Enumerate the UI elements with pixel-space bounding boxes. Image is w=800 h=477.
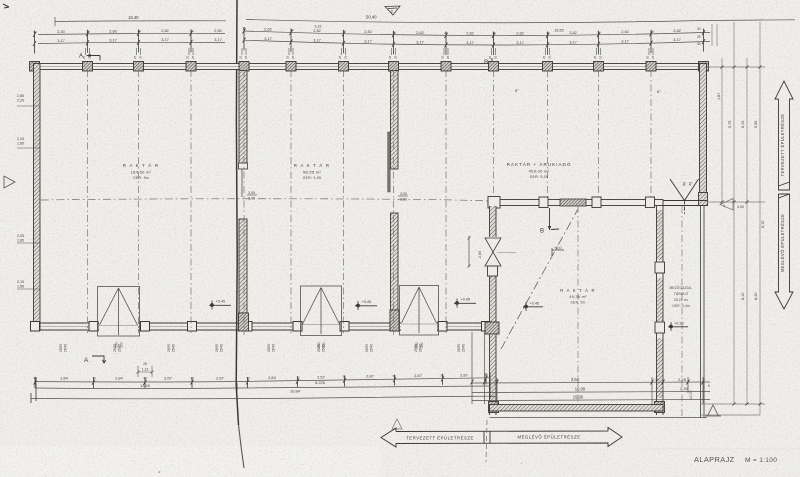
svg-text:30: 30 [492, 31, 496, 35]
svg-text:5,96: 5,96 [754, 121, 758, 128]
svg-text:6°: 6° [515, 88, 519, 93]
svg-text:2,30: 2,30 [57, 29, 65, 34]
svg-text:2,15: 2,15 [17, 280, 24, 284]
svg-text:30: 30 [246, 376, 250, 380]
svg-text:25: 25 [244, 55, 248, 59]
svg-text:3,17: 3,17 [466, 40, 474, 45]
svg-text:1,85: 1,85 [17, 239, 24, 243]
svg-text:TERVEZETT ÉPÜLETRÉSZE: TERVEZETT ÉPÜLETRÉSZE [780, 114, 785, 177]
svg-text:3,17: 3,17 [621, 39, 629, 44]
svg-text:25/55: 25/55 [317, 344, 321, 352]
svg-text:25: 25 [394, 55, 398, 59]
svg-text:2,82: 2,82 [673, 28, 681, 33]
svg-text:+0,45: +0,45 [362, 300, 372, 304]
svg-text:1,84: 1,84 [60, 376, 69, 381]
svg-text:2,84: 2,84 [268, 375, 277, 380]
svg-text:18,40: 18,40 [128, 15, 139, 20]
svg-text:3,22: 3,22 [314, 25, 321, 29]
svg-text:25: 25 [542, 55, 546, 59]
svg-text:+0,10: +0,10 [674, 322, 684, 326]
svg-text:25: 25 [133, 55, 137, 59]
svg-text:50,40: 50,40 [366, 15, 377, 20]
svg-text:98,55 m²: 98,55 m² [303, 170, 322, 175]
svg-text:25: 25 [291, 55, 295, 59]
svg-text:3,17: 3,17 [313, 37, 321, 42]
svg-text:30: 30 [242, 27, 246, 31]
svg-text:30: 30 [296, 375, 300, 379]
svg-text:30: 30 [597, 30, 601, 34]
svg-text:25/40: 25/40 [64, 344, 68, 352]
svg-text:25/40: 25/40 [462, 344, 466, 352]
svg-text:30: 30 [190, 29, 194, 33]
svg-text:25/40: 25/40 [322, 344, 326, 352]
svg-text:30: 30 [92, 376, 96, 380]
svg-text:25: 25 [651, 55, 655, 59]
svg-text:49,35 m²: 49,35 m² [569, 295, 587, 299]
svg-text:459,00 m²: 459,00 m² [529, 169, 550, 174]
svg-text:2,62: 2,62 [264, 27, 272, 32]
svg-text:25: 25 [286, 55, 290, 59]
svg-text:2,80: 2,80 [109, 28, 117, 33]
svg-text:3,00: 3,00 [400, 192, 407, 196]
svg-text:25: 25 [697, 35, 701, 39]
svg-text:2,82: 2,82 [516, 30, 524, 35]
svg-text:30: 30 [392, 374, 396, 378]
svg-text:30: 30 [655, 378, 659, 382]
svg-text:25/40: 25/40 [172, 344, 176, 352]
svg-text:5,225: 5,225 [315, 380, 326, 385]
svg-text:+0,0: +0,0 [554, 246, 562, 250]
svg-text:16,00: 16,00 [575, 387, 586, 392]
svg-text:2,87: 2,87 [366, 374, 375, 379]
svg-text:GER: 3,4m: GER: 3,4m [672, 304, 690, 308]
svg-text:3,17: 3,17 [161, 37, 169, 42]
svg-text:2,82: 2,82 [313, 28, 321, 33]
svg-text:25: 25 [344, 55, 348, 59]
svg-text:2,57: 2,57 [317, 374, 326, 379]
svg-text:M = 1:100: M = 1:100 [745, 457, 777, 464]
svg-text:2,25: 2,25 [17, 99, 24, 103]
svg-text:30: 30 [440, 373, 444, 377]
svg-text:2,85: 2,85 [17, 94, 24, 98]
svg-text:1,85: 1,85 [17, 142, 24, 146]
svg-text:R A K T Á R: R A K T Á R [560, 288, 595, 293]
svg-text:MEGLÉVŐ ÉPÜLETRÉSZE: MEGLÉVŐ ÉPÜLETRÉSZE [518, 435, 581, 440]
svg-text:25/55: 25/55 [167, 344, 171, 352]
svg-text:3,17: 3,17 [416, 39, 424, 44]
svg-text:30: 30 [650, 29, 654, 33]
svg-text:25: 25 [143, 362, 147, 366]
svg-text:10,84: 10,84 [290, 389, 301, 394]
svg-text:RAKTÁR + ÁRUKIADÓ: RAKTÁR + ÁRUKIADÓ [507, 161, 572, 167]
svg-text:25/40: 25/40 [272, 344, 276, 352]
svg-text:25: 25 [191, 55, 195, 59]
svg-text:2,57: 2,57 [164, 376, 173, 381]
svg-text:MEGLÉVŐ ÉPÜLETRÉSZE: MEGLÉVŐ ÉPÜLETRÉSZE [780, 214, 785, 273]
svg-text:90: 90 [682, 182, 687, 187]
svg-text:25: 25 [388, 55, 392, 59]
svg-text:6,10: 6,10 [761, 221, 765, 228]
svg-text:2,82: 2,82 [161, 28, 169, 33]
svg-text:25: 25 [593, 55, 597, 59]
svg-text:3,17: 3,17 [57, 38, 65, 43]
svg-text:25: 25 [599, 55, 603, 59]
svg-text:8,10: 8,10 [741, 293, 745, 300]
svg-text:5: 5 [708, 384, 710, 388]
svg-text:3,17: 3,17 [673, 37, 681, 42]
svg-text:3,17: 3,17 [214, 37, 222, 42]
svg-text:GER: 5,05: GER: 5,05 [303, 176, 322, 180]
svg-text:2,30: 2,30 [680, 386, 689, 391]
svg-text:GER: 5m: GER: 5m [133, 176, 149, 180]
svg-text:R A K T Á R: R A K T Á R [294, 163, 330, 168]
svg-text:45: 45 [688, 182, 693, 187]
svg-text:2,87: 2,87 [460, 372, 469, 377]
svg-text:1,13: 1,13 [142, 368, 149, 372]
svg-text:⁴: ⁴ [158, 470, 160, 476]
svg-text:30: 30 [697, 27, 701, 31]
svg-text:3,17: 3,17 [569, 39, 577, 44]
svg-text:+0,45: +0,45 [461, 298, 471, 302]
svg-text:2,62: 2,62 [416, 30, 424, 35]
svg-text:25/40: 25/40 [419, 344, 423, 352]
svg-text:30: 30 [392, 30, 396, 34]
svg-text:1,85: 1,85 [17, 285, 24, 289]
svg-text:25,22 m²: 25,22 m² [674, 298, 688, 302]
svg-text:2,15: 2,15 [17, 137, 24, 141]
svg-text:3,17: 3,17 [516, 40, 524, 45]
svg-text:30: 30 [697, 42, 701, 46]
svg-text:2,60: 2,60 [478, 251, 482, 258]
svg-text:30: 30 [342, 375, 346, 379]
svg-text:ALAPRAJZ: ALAPRAJZ [694, 455, 735, 464]
svg-text:25/40: 25/40 [370, 344, 374, 352]
svg-text:GER: 5,05: GER: 5,05 [530, 175, 549, 179]
svg-text:6°: 6° [657, 89, 661, 94]
svg-text:30: 30 [33, 376, 37, 380]
svg-text:2,57: 2,57 [216, 376, 225, 381]
svg-text:25: 25 [441, 55, 445, 59]
svg-text:3,00: 3,00 [737, 205, 744, 209]
svg-text:30: 30 [190, 376, 194, 380]
svg-text:A: A [79, 54, 83, 60]
svg-text:25: 25 [646, 55, 650, 59]
svg-text:3,17: 3,17 [264, 36, 272, 41]
svg-text:5,75: 5,75 [728, 121, 732, 128]
svg-text:TÁROLÓ: TÁROLÓ [674, 291, 689, 296]
svg-text:25/55: 25/55 [113, 344, 117, 352]
svg-text:2,82: 2,82 [466, 30, 474, 35]
svg-text:25/55: 25/55 [59, 344, 63, 352]
svg-text:25: 25 [338, 55, 342, 59]
svg-text:30: 30 [290, 28, 294, 32]
svg-text:15,00: 15,00 [573, 395, 584, 400]
svg-text:25: 25 [239, 55, 243, 59]
svg-text:184,50 m²: 184,50 m² [131, 170, 152, 175]
svg-text:30: 30 [137, 29, 141, 33]
svg-text:2,05: 2,05 [17, 234, 24, 238]
svg-text:25/40: 25/40 [118, 344, 122, 352]
svg-text:GER: 5m: GER: 5m [570, 301, 585, 305]
svg-text:2,82: 2,82 [364, 29, 372, 34]
svg-text:25/55: 25/55 [267, 344, 271, 352]
svg-text:2,82: 2,82 [214, 28, 222, 33]
svg-text:2,84: 2,84 [115, 376, 124, 381]
svg-text:25: 25 [186, 55, 190, 59]
svg-text:25: 25 [548, 55, 552, 59]
svg-text:6,15: 6,15 [741, 121, 745, 128]
svg-text:25: 25 [488, 55, 492, 59]
svg-text:+0,45: +0,45 [216, 300, 226, 304]
svg-text:TERVEZETT ÉPÜLETRÉSZE: TERVEZETT ÉPÜLETRÉSZE [406, 436, 474, 441]
svg-text:18,55: 18,55 [554, 29, 564, 33]
svg-text:25: 25 [446, 55, 450, 59]
svg-text:+0,45: +0,45 [530, 302, 540, 306]
svg-text:30: 30 [33, 30, 37, 34]
svg-text:25: 25 [139, 55, 143, 59]
svg-text:8,40: 8,40 [754, 293, 758, 300]
svg-text:1,87: 1,87 [717, 93, 721, 100]
svg-text:25/55: 25/55 [457, 344, 461, 352]
svg-text:2,87: 2,87 [414, 373, 423, 378]
svg-text:30: 30 [86, 29, 90, 33]
svg-text:2,62: 2,62 [621, 29, 629, 34]
svg-text:30: 30 [342, 29, 346, 33]
svg-text:2,25: 2,25 [678, 377, 687, 382]
svg-text:B: B [540, 229, 544, 235]
svg-text:ʻ: ʻ [521, 462, 522, 469]
svg-text:25/40: 25/40 [220, 344, 224, 352]
svg-text:±0,00: ±0,00 [689, 390, 693, 399]
svg-text:25/55: 25/55 [365, 344, 369, 352]
svg-text:MEZŐGAZDA.: MEZŐGAZDA. [669, 285, 692, 290]
svg-text:2,82: 2,82 [569, 30, 577, 35]
svg-text:25/55: 25/55 [215, 344, 219, 352]
svg-text:30: 30 [143, 376, 147, 380]
svg-text:30: 30 [484, 373, 488, 377]
svg-text:3,50: 3,50 [571, 377, 580, 382]
svg-text:R A K T Á R: R A K T Á R [123, 163, 159, 168]
svg-text:3,00: 3,00 [248, 191, 255, 195]
svg-text:25/55: 25/55 [414, 344, 418, 352]
svg-text:30: 30 [546, 31, 550, 35]
svg-text:30: 30 [444, 31, 448, 35]
svg-text:3,17: 3,17 [109, 37, 117, 42]
svg-text:25: 25 [494, 55, 498, 59]
svg-text:12,40: 12,40 [140, 383, 151, 388]
svg-text:3,17: 3,17 [364, 39, 372, 44]
svg-text:A: A [84, 357, 89, 364]
